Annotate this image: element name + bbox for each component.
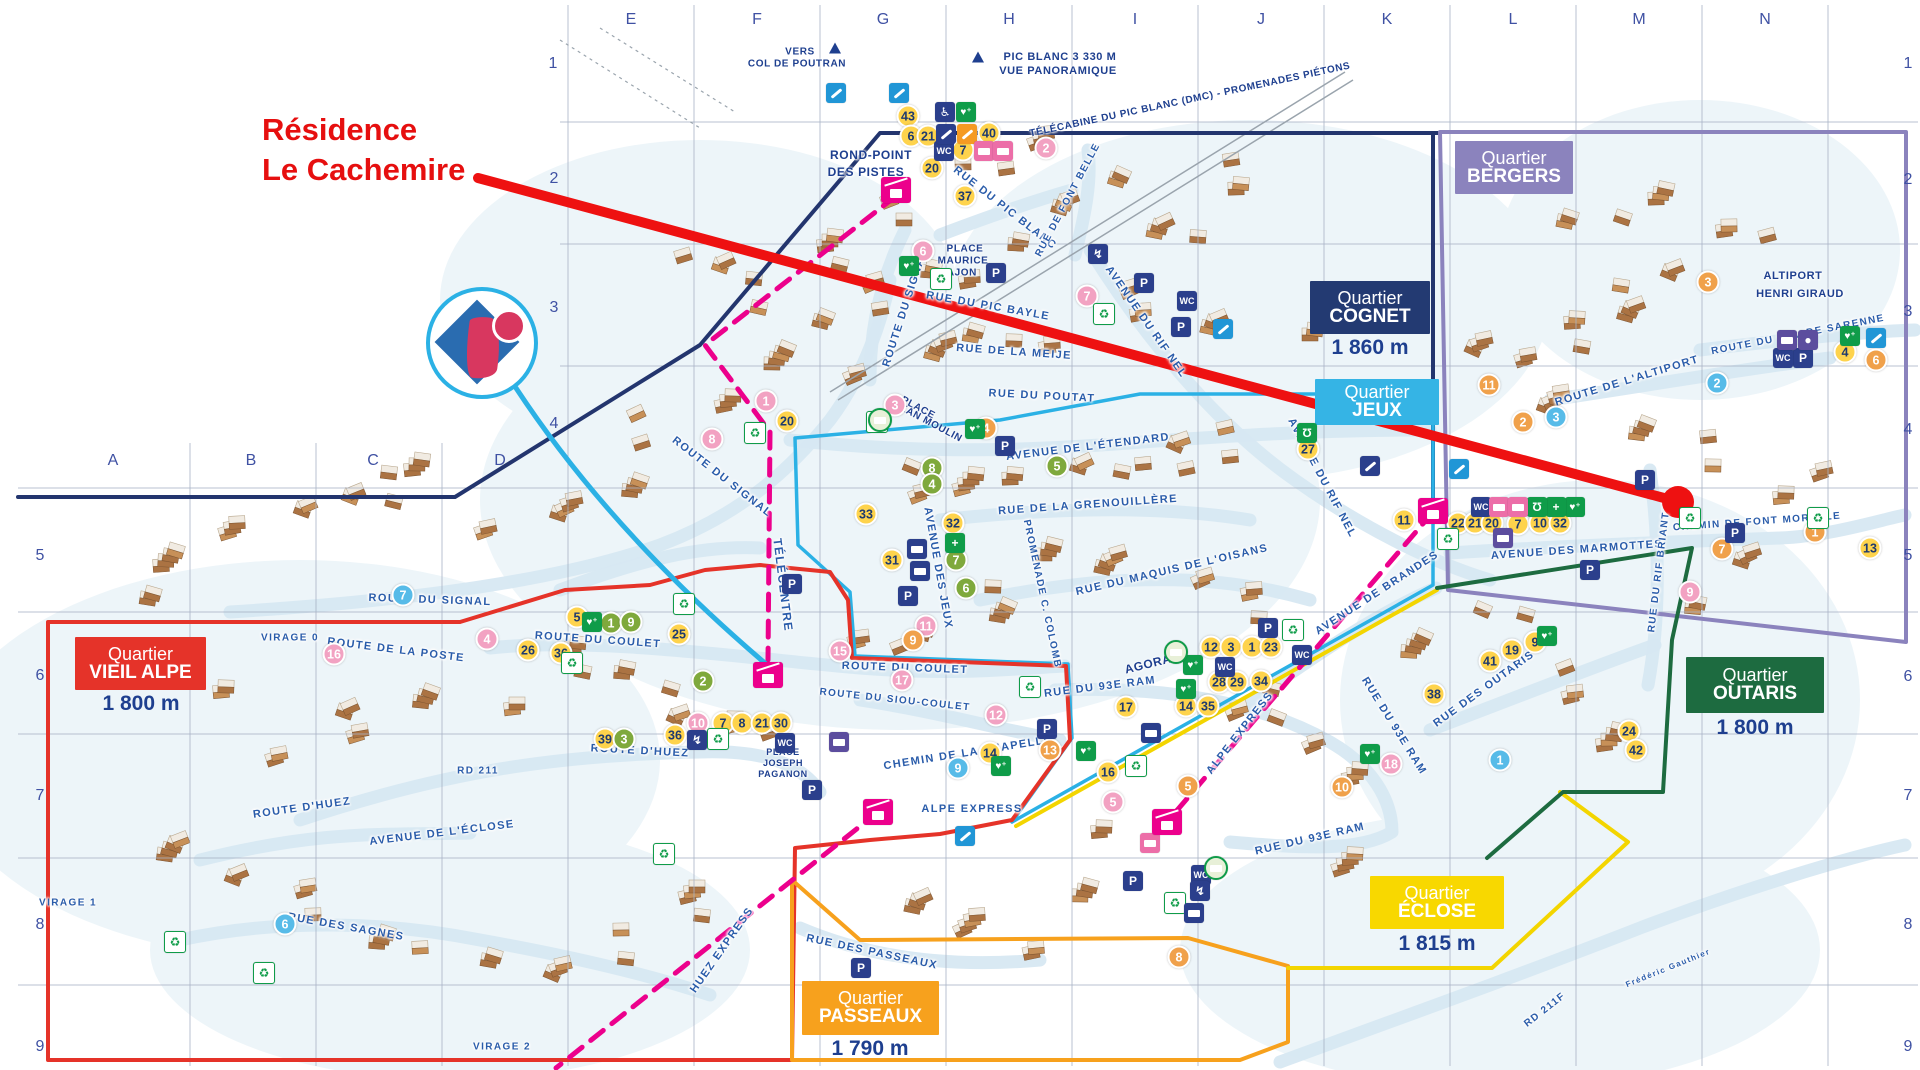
map-marker-3: 3 xyxy=(613,728,636,751)
horse-icon xyxy=(1141,723,1161,743)
wc-icon: WC xyxy=(1215,657,1235,677)
recycling-icon: ♻ xyxy=(1437,528,1459,550)
grid-row-label: 3 xyxy=(1904,303,1913,321)
map-marker-1: 1 xyxy=(1489,749,1512,772)
toilets-icon xyxy=(1184,903,1204,923)
building xyxy=(1519,347,1537,363)
map-marker-20: 20 xyxy=(776,410,799,433)
wheelchair-icon: ♿ xyxy=(935,102,955,122)
icon-glyph xyxy=(1453,464,1465,475)
luggage-icon xyxy=(993,141,1013,161)
map-marker-35: 35 xyxy=(1197,695,1220,718)
map-marker-10: 10 xyxy=(1331,776,1354,799)
cable-towers xyxy=(560,28,735,128)
quartier-name: OUTARIS xyxy=(1713,684,1797,703)
building xyxy=(1012,232,1030,248)
map-marker-25: 25 xyxy=(668,623,691,646)
map-marker-4: 4 xyxy=(476,628,499,651)
gondola-cable xyxy=(1421,498,1444,507)
snowmobile-icon xyxy=(1213,319,1233,339)
parking-icon: P xyxy=(1793,348,1813,368)
quartier-box-passeaux: QuartierPASSEAUX xyxy=(802,981,939,1035)
xc-ski-icon xyxy=(889,83,909,103)
charging-icon: ↯ xyxy=(687,730,707,750)
snowboard-icon xyxy=(955,826,975,846)
quartier-box-jeux: QuartierJEUX xyxy=(1315,379,1439,425)
gondola-icon xyxy=(881,177,911,203)
grid-row-label: 2 xyxy=(1904,171,1913,189)
wc-icon: WC xyxy=(1292,645,1312,665)
icon-glyph xyxy=(1512,504,1524,511)
gondola-cable xyxy=(1155,809,1178,818)
wc-icon: WC xyxy=(1471,497,1491,517)
recycling-icon: ♻ xyxy=(1125,755,1147,777)
quartier-name: JEUX xyxy=(1352,401,1402,420)
luggage-icon xyxy=(974,141,994,161)
gondola-cable xyxy=(756,662,779,671)
grid-row-label: 7 xyxy=(36,787,45,805)
building xyxy=(229,516,246,530)
map-marker-9: 9 xyxy=(620,611,643,634)
luggage-icon xyxy=(1140,833,1160,853)
parking-icon: P xyxy=(802,780,822,800)
building xyxy=(967,466,984,481)
building xyxy=(1006,466,1023,480)
grid-col-label: L xyxy=(1509,11,1518,29)
recycling-icon: ♻ xyxy=(653,843,675,865)
defibrillator-icon: ♥⁺ xyxy=(1076,741,1096,761)
icon-glyph xyxy=(1144,840,1156,847)
grid-row-label: 8 xyxy=(36,916,45,934)
recycling-icon: ♻ xyxy=(164,931,186,953)
parking-icon: P xyxy=(851,958,871,978)
building xyxy=(1246,581,1263,595)
gondola-cable xyxy=(884,177,907,186)
gondola-icon xyxy=(1418,498,1448,524)
building xyxy=(618,660,636,676)
quartier-altitude-eclose: 1 815 m xyxy=(1398,932,1475,956)
map-marker-30: 30 xyxy=(770,712,793,735)
train-icon xyxy=(1164,640,1188,664)
building xyxy=(509,697,525,710)
train-icon xyxy=(868,408,892,432)
defibrillator-icon: ♥⁺ xyxy=(1565,497,1585,517)
place-label: VERS xyxy=(785,47,815,58)
quartier-name: VIEIL ALPE xyxy=(89,663,191,682)
gondola-icon xyxy=(863,799,893,825)
defibrillator-icon: ♥⁺ xyxy=(1537,626,1557,646)
map-marker-16: 16 xyxy=(1097,761,1120,784)
map-marker-41: 41 xyxy=(1479,650,1502,673)
grid-col-label: K xyxy=(1382,11,1393,29)
icon-glyph xyxy=(1870,333,1882,344)
grid-row-label: 9 xyxy=(36,1038,45,1056)
map-marker-5: 5 xyxy=(1177,775,1200,798)
building xyxy=(1612,278,1630,293)
defibrillator-icon: ♥⁺ xyxy=(1360,744,1380,764)
quartier-word: Quartier xyxy=(1481,149,1546,167)
gondola-icon xyxy=(753,662,783,688)
building xyxy=(1721,219,1737,232)
map-marker-18: 18 xyxy=(1380,753,1403,776)
quartier-name: PASSEAUX xyxy=(819,1007,922,1026)
icon-glyph xyxy=(1781,337,1793,344)
building xyxy=(1028,940,1045,954)
icon-glyph xyxy=(833,739,845,746)
hand-icon xyxy=(910,561,930,581)
icon-glyph xyxy=(911,546,923,553)
grid-row-label: 5 xyxy=(36,547,45,565)
map-marker-16: 16 xyxy=(323,643,346,666)
map-marker-2: 2 xyxy=(1512,411,1535,434)
icon-glyph xyxy=(914,568,926,575)
recycling-icon: ♻ xyxy=(1164,892,1186,914)
gondola-cabin xyxy=(762,674,774,683)
map-marker-8: 8 xyxy=(1168,946,1191,969)
horse-icon xyxy=(907,539,927,559)
map-marker-3: 3 xyxy=(1220,636,1243,659)
quartier-box-bergers: QuartierBERGERS xyxy=(1455,141,1573,194)
train-icon xyxy=(1204,856,1228,880)
gondola-cabin xyxy=(890,189,902,198)
pharmacy-cross-icon: + xyxy=(1546,497,1566,517)
building xyxy=(1221,449,1238,464)
vet-icon: Ʊ xyxy=(1297,423,1317,443)
map-marker-9: 9 xyxy=(947,757,970,780)
parking-icon: P xyxy=(1123,871,1143,891)
building xyxy=(1113,464,1131,480)
building xyxy=(1232,176,1249,190)
grid-row-label: 1 xyxy=(1904,55,1913,73)
grid-row-label: 4 xyxy=(550,415,559,433)
place-label: COL DE POUTRAN xyxy=(748,59,846,70)
building xyxy=(969,907,986,921)
gondola-icon xyxy=(1152,809,1182,835)
quartier-word: Quartier xyxy=(1337,289,1402,307)
icon-glyph xyxy=(1170,649,1182,656)
map-marker-11: 11 xyxy=(1393,509,1416,532)
building xyxy=(871,301,889,316)
icon-glyph xyxy=(874,417,886,424)
gondola-cabin xyxy=(872,811,884,820)
building xyxy=(1566,684,1583,699)
building xyxy=(617,951,634,966)
grid-col-label: J xyxy=(1257,11,1265,29)
building xyxy=(413,452,431,467)
place-label: ROND-POINT xyxy=(830,148,912,162)
building xyxy=(985,580,1001,594)
icon-glyph xyxy=(997,148,1009,155)
place-label: HENRI GIRAUD xyxy=(1756,288,1844,300)
grid-row-label: 2 xyxy=(550,170,559,188)
map-marker-4: 4 xyxy=(921,473,944,496)
grid-row-label: 6 xyxy=(36,667,45,685)
map-marker-9: 9 xyxy=(902,629,925,652)
wc-icon: WC xyxy=(934,141,954,161)
place-label: ALTIPORT xyxy=(1764,270,1823,282)
sled-run-icon xyxy=(1449,459,1469,479)
map-marker-7: 7 xyxy=(392,584,415,607)
map-marker-6: 6 xyxy=(955,577,978,600)
grid-col-label: D xyxy=(494,452,506,470)
defibrillator-icon: ♥⁺ xyxy=(991,756,1011,776)
building xyxy=(689,880,705,893)
place-label: MAURICE xyxy=(938,256,989,267)
map-marker-2: 2 xyxy=(692,670,715,693)
water-icon: ● xyxy=(1798,330,1818,350)
place-label: PAGANON xyxy=(758,769,808,779)
logo-figure-head xyxy=(492,309,526,343)
place-label: PIC BLANC 3 330 M xyxy=(1004,51,1117,63)
gondola-cabin xyxy=(1161,821,1173,830)
ski-icon xyxy=(826,83,846,103)
parking-icon: P xyxy=(1580,560,1600,580)
wc-icon: WC xyxy=(1773,348,1793,368)
recycling-icon: ♻ xyxy=(1019,676,1041,698)
recycling-icon: ♻ xyxy=(561,652,583,674)
map-marker-2: 2 xyxy=(1706,372,1729,395)
quartier-altitude-vieil-alpe: 1 800 m xyxy=(102,692,179,716)
place-label: VUE PANORAMIQUE xyxy=(999,65,1117,77)
icon-glyph xyxy=(978,148,990,155)
icon-glyph xyxy=(1210,865,1222,872)
quartier-word: Quartier xyxy=(1404,884,1469,902)
map-marker-5: 5 xyxy=(1046,455,1069,478)
icon-glyph xyxy=(1145,730,1157,737)
map-marker-8: 8 xyxy=(701,428,724,451)
recycling-icon: ♻ xyxy=(1679,507,1701,529)
vet-icon: Ʊ xyxy=(1527,497,1547,517)
grid-col-label: C xyxy=(367,452,379,470)
street-label: ALPE EXPRESS xyxy=(921,803,1022,815)
annotation-residence-label: Résidence Le Cachemire xyxy=(262,110,465,191)
building xyxy=(299,878,317,893)
icon-glyph xyxy=(830,88,842,99)
building xyxy=(896,213,912,226)
map-marker-37: 37 xyxy=(954,185,977,208)
quartier-name: COGNET xyxy=(1329,307,1410,326)
map-marker-13: 13 xyxy=(1039,739,1062,762)
grid-col-label: N xyxy=(1759,11,1771,29)
building xyxy=(1705,459,1721,472)
quartier-box-cognet: QuartierCOGNET xyxy=(1310,281,1430,334)
defibrillator-icon: ♥⁺ xyxy=(956,102,976,122)
map-marker-12: 12 xyxy=(985,704,1008,727)
grid-row-label: 3 xyxy=(550,299,559,317)
resort-map: Résidence Le Cachemire EFGHIJKLMNABCD123… xyxy=(0,0,1920,1070)
grid-row-label: 1 xyxy=(549,55,558,73)
icon-glyph xyxy=(940,129,952,140)
grid-col-label: B xyxy=(246,452,257,470)
recycling-icon: ♻ xyxy=(1282,619,1304,641)
gondola-cable xyxy=(866,799,889,808)
map-marker-6: 6 xyxy=(1865,349,1888,372)
map-marker-34: 34 xyxy=(1250,670,1273,693)
building xyxy=(380,465,397,480)
wc-icon: WC xyxy=(775,733,795,753)
parking-icon: P xyxy=(995,436,1015,456)
map-marker-38: 38 xyxy=(1423,683,1446,706)
recycling-icon: ♻ xyxy=(253,962,275,984)
parking-icon: P xyxy=(1258,618,1278,638)
building xyxy=(218,680,234,694)
bus-icon xyxy=(1493,528,1513,548)
parking-icon: P xyxy=(1725,523,1745,543)
street-label: RD 211 xyxy=(457,766,499,777)
map-marker-3: 3 xyxy=(1545,406,1568,429)
peak-icon xyxy=(972,52,984,63)
quartier-word: Quartier xyxy=(838,989,903,1007)
peak-icon xyxy=(829,43,841,54)
map-marker-36: 36 xyxy=(664,724,687,747)
map-marker-32: 32 xyxy=(942,512,965,535)
quartier-name: ÉCLOSE xyxy=(1398,902,1476,921)
recycling-icon: ♻ xyxy=(1807,507,1829,529)
quartier-name: BERGERS xyxy=(1467,167,1561,186)
street-label: VIRAGE 1 xyxy=(39,898,97,909)
grid-row-label: 4 xyxy=(1904,421,1913,439)
map-marker-1: 1 xyxy=(755,390,778,413)
map-marker-23: 23 xyxy=(1260,636,1283,659)
sledge-icon xyxy=(1360,456,1380,476)
map-marker-33: 33 xyxy=(855,503,878,526)
parking-icon: P xyxy=(986,263,1006,283)
place-label: JOSEPH xyxy=(763,758,803,768)
quartier-word: Quartier xyxy=(1722,666,1787,684)
icon-glyph xyxy=(961,129,973,140)
map-marker-17: 17 xyxy=(891,669,914,692)
map-marker-17: 17 xyxy=(1115,696,1138,719)
grid-col-label: I xyxy=(1133,11,1137,29)
parking-icon: P xyxy=(1037,719,1057,739)
defibrillator-icon: ♥⁺ xyxy=(582,612,602,632)
grid-col-label: A xyxy=(108,452,119,470)
quartier-word: Quartier xyxy=(1344,383,1409,401)
icon-glyph xyxy=(893,88,905,99)
building xyxy=(1815,460,1833,476)
grid-row-label: 8 xyxy=(1904,916,1913,934)
building xyxy=(1569,311,1586,325)
parking-icon: P xyxy=(1171,317,1191,337)
defibrillator-icon: ♥⁺ xyxy=(899,256,919,276)
icon-glyph xyxy=(959,831,971,842)
sledge-icon xyxy=(936,124,956,144)
map-marker-5: 5 xyxy=(1102,791,1125,814)
charging-icon: ↯ xyxy=(1088,244,1108,264)
quartier-word: Quartier xyxy=(108,645,173,663)
luggage-icon xyxy=(1508,497,1528,517)
grid-row-label: 9 xyxy=(1904,1038,1913,1056)
quartier-box-vieil-alpe: QuartierVIEIL ALPE xyxy=(75,637,206,690)
pharmacy-cross-icon: + xyxy=(945,533,965,553)
quartier-altitude-passeaux: 1 790 m xyxy=(831,1037,908,1061)
icon-glyph xyxy=(1364,461,1376,472)
grid-col-label: G xyxy=(877,11,889,29)
bus-icon xyxy=(829,732,849,752)
street-label: VIRAGE 0 xyxy=(261,633,319,644)
defibrillator-icon: ♥⁺ xyxy=(965,419,985,439)
map-marker-6: 6 xyxy=(274,913,297,936)
charging-icon: ↯ xyxy=(1190,881,1210,901)
map-marker-19: 19 xyxy=(1501,639,1524,662)
defibrillator-icon: ♥⁺ xyxy=(1840,326,1860,346)
map-marker-11: 11 xyxy=(1478,374,1501,397)
icon-glyph xyxy=(1188,910,1200,917)
building xyxy=(613,923,629,936)
quartier-box-outaris: QuartierOUTARIS xyxy=(1686,657,1824,713)
map-marker-13: 13 xyxy=(1859,537,1882,560)
building xyxy=(1096,820,1112,834)
street-label: VIRAGE 2 xyxy=(473,1042,531,1053)
grid-col-label: E xyxy=(626,11,637,29)
building xyxy=(412,941,429,955)
place-label: PLACE xyxy=(947,244,984,255)
map-marker-31: 31 xyxy=(881,549,904,572)
recycling-icon: ♻ xyxy=(1093,303,1115,325)
building xyxy=(997,161,1015,176)
map-marker-3: 3 xyxy=(1697,271,1720,294)
parking-icon: P xyxy=(1635,470,1655,490)
icon-glyph xyxy=(1493,504,1505,511)
map-marker-15: 15 xyxy=(829,640,852,663)
recycling-icon: ♻ xyxy=(707,728,729,750)
bus-icon xyxy=(1777,330,1797,350)
grid-col-label: H xyxy=(1003,11,1015,29)
icon-glyph xyxy=(1217,324,1229,335)
building xyxy=(1135,456,1152,470)
map-marker-9: 9 xyxy=(1679,581,1702,604)
grid-col-label: F xyxy=(752,11,762,29)
grid-row-label: 7 xyxy=(1904,787,1913,805)
gondola-cabin xyxy=(1427,510,1439,519)
wc-icon: WC xyxy=(1177,291,1197,311)
map-marker-2: 2 xyxy=(1035,137,1058,160)
recycling-icon: ♻ xyxy=(930,268,952,290)
grid-row-label: 6 xyxy=(1904,668,1913,686)
building xyxy=(693,908,710,923)
parking-icon: P xyxy=(782,574,802,594)
map-marker-42: 42 xyxy=(1625,739,1648,762)
recycling-icon: ♻ xyxy=(744,422,766,444)
recycling-icon: ♻ xyxy=(673,593,695,615)
quartier-altitude-cognet: 1 860 m xyxy=(1331,336,1408,360)
parking-icon: P xyxy=(898,586,918,606)
resort-logo xyxy=(426,287,538,399)
map-marker-26: 26 xyxy=(517,639,540,662)
grid-row-label: 5 xyxy=(1904,547,1913,565)
luggage-icon xyxy=(1489,497,1509,517)
quartier-altitude-outaris: 1 800 m xyxy=(1716,716,1793,740)
defibrillator-icon: ♥⁺ xyxy=(1176,679,1196,699)
building xyxy=(351,723,369,739)
ski-icon xyxy=(1866,328,1886,348)
icon-glyph xyxy=(1497,535,1509,542)
parking-icon: P xyxy=(1134,273,1154,293)
grid-col-label: M xyxy=(1632,11,1645,29)
quartier-box-eclose: QuartierÉCLOSE xyxy=(1370,876,1504,929)
building xyxy=(270,746,288,762)
